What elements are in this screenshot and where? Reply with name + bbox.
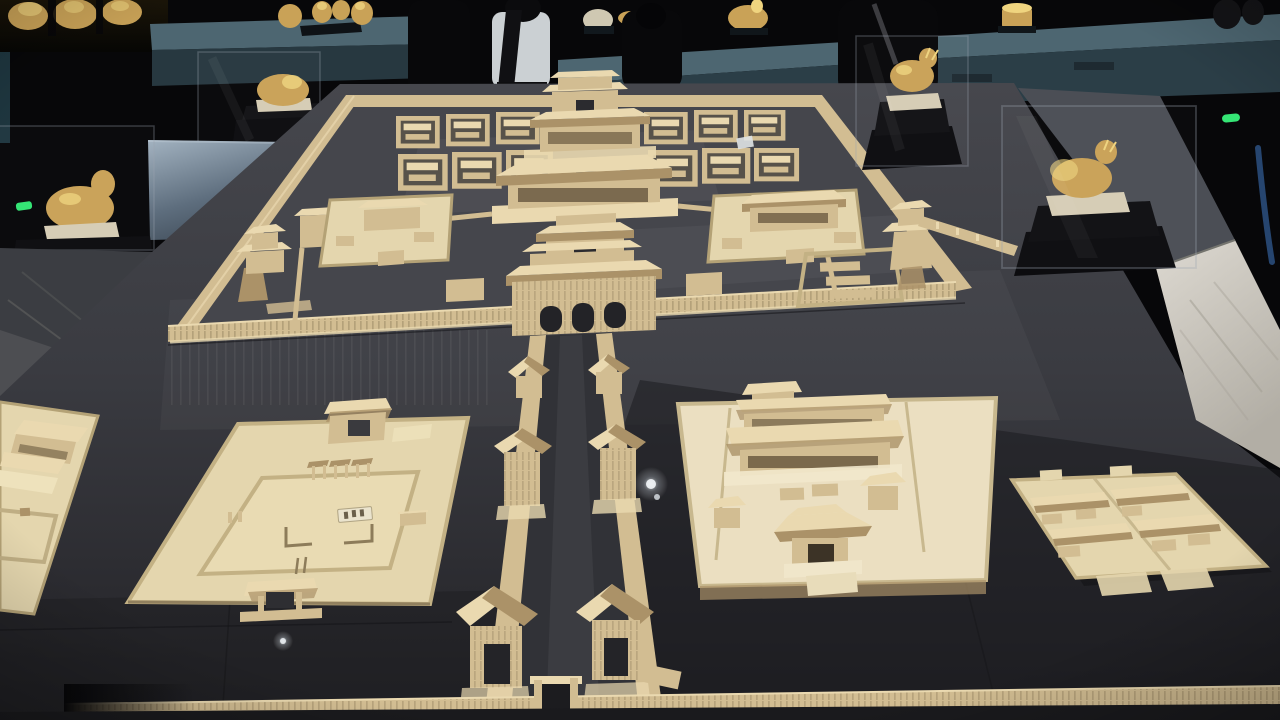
scene-canvas xyxy=(0,0,1280,720)
museum-photo xyxy=(0,0,1280,720)
vignette-overlay xyxy=(0,0,1280,720)
